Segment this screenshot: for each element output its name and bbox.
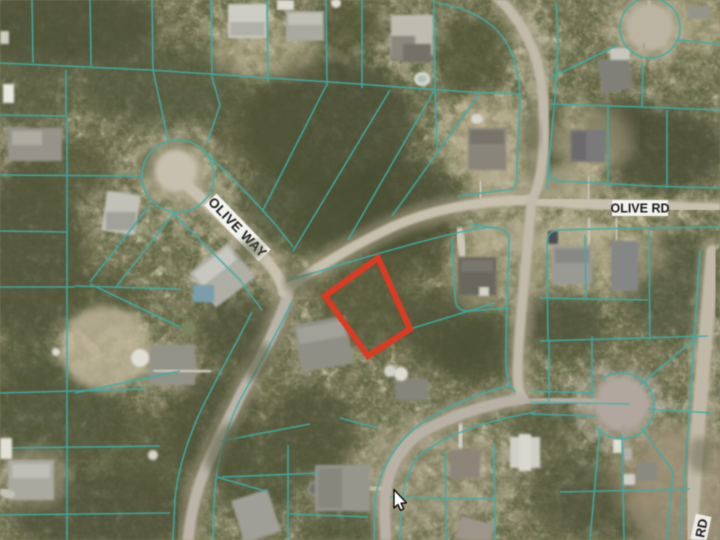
svg-text:OLIVE RD: OLIVE RD xyxy=(610,202,669,216)
